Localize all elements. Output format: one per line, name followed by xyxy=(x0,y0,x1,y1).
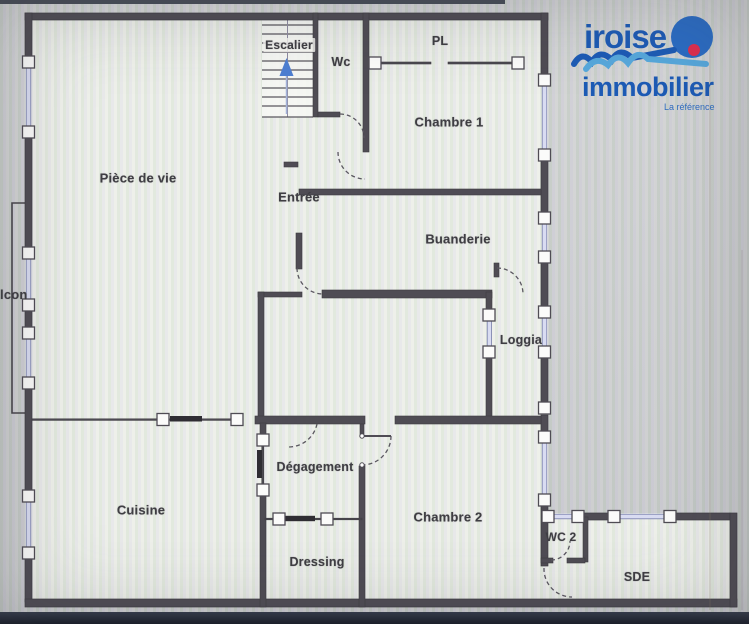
photo-top-edge xyxy=(0,0,505,4)
logo-text-line2: immobilier xyxy=(582,74,714,101)
room-label-wc: Wc xyxy=(331,55,350,69)
logo-red-dot-icon xyxy=(688,44,700,56)
room-label-cuisine: Cuisine xyxy=(117,503,165,518)
room-label-degagement: Dégagement xyxy=(276,460,353,474)
logo-text-line1: iroise xyxy=(584,20,666,53)
staircase xyxy=(262,16,313,117)
room-label-piece-de-vie: Pièce de vie xyxy=(100,171,177,186)
room-label-chambre-2: Chambre 2 xyxy=(414,510,483,525)
room-label-escalier: Escalier xyxy=(263,38,315,52)
photo-bottom-edge xyxy=(0,612,749,624)
room-label-entree: Entrée xyxy=(278,190,320,205)
room-label-balcon: Balcon xyxy=(0,287,28,302)
wall-connectors xyxy=(23,56,677,559)
room-label-wc-2: WC 2 xyxy=(546,530,577,544)
agency-logo: iroise immobilier La référence xyxy=(556,2,749,127)
room-label-buanderie: Buanderie xyxy=(425,232,490,247)
room-label-chambre-1: Chambre 1 xyxy=(415,115,484,130)
logo-tagline: La référence xyxy=(664,103,715,112)
floorplan-photo: Escalier Wc PL Chambre 1 Pièce de vie En… xyxy=(0,0,749,624)
room-label-loggia: Loggia xyxy=(500,333,542,347)
windows xyxy=(26,62,668,553)
room-label-sde: SDE xyxy=(624,570,650,584)
room-label-dressing: Dressing xyxy=(289,555,344,569)
room-label-pl: PL xyxy=(432,34,448,48)
